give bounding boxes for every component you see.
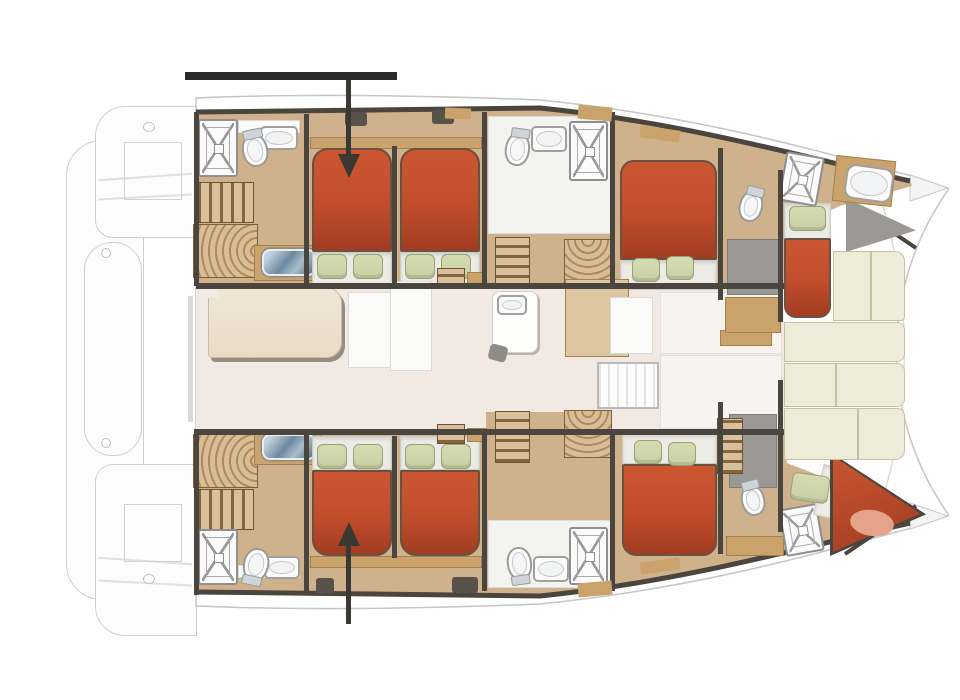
washbasin (533, 556, 569, 582)
pillow (789, 471, 831, 504)
arrow-down-icon (346, 80, 351, 156)
pillow (405, 444, 435, 469)
bulkhead (482, 431, 487, 591)
bulkhead (778, 170, 783, 322)
arrow-up-head-icon (338, 522, 360, 546)
bulkhead (304, 431, 309, 591)
shower-stall (569, 527, 608, 585)
bow-lounge-cushion (836, 363, 905, 407)
pillow (632, 258, 660, 282)
double-bed (400, 470, 480, 556)
bulkhead (610, 431, 615, 591)
hanging-locker (193, 434, 258, 488)
bulkhead (392, 436, 397, 558)
pillow (668, 442, 696, 466)
bow-lounge-cushion (784, 363, 836, 407)
bulkhead (718, 148, 723, 300)
pillow (317, 444, 347, 469)
pillow (405, 254, 435, 279)
pillow (666, 256, 694, 280)
sheer-trim (577, 105, 612, 122)
bow-lounge-cushion (833, 251, 871, 321)
arrow-up-icon (346, 546, 351, 624)
bow-lounge-cushion (858, 408, 905, 460)
galley-cabinet (390, 281, 432, 371)
pillow (634, 440, 662, 464)
bow-lounge-cushion (784, 408, 858, 460)
bulkhead (196, 429, 784, 435)
staircase (197, 489, 254, 530)
bulkhead (194, 112, 199, 286)
double-bed (400, 148, 480, 252)
catamaran-floor-plan (0, 0, 960, 700)
pillow (789, 206, 826, 231)
forward-double-bed (784, 238, 831, 318)
double-bed (620, 160, 717, 260)
bulkhead (196, 283, 784, 289)
pillow (317, 254, 347, 279)
washbasin (843, 163, 895, 204)
bulkhead (392, 146, 397, 286)
cabinet (725, 297, 781, 333)
deck-cleat (316, 578, 334, 594)
double-bed (622, 464, 717, 556)
bulkhead (610, 112, 615, 288)
staircase (495, 411, 530, 463)
arrow-down-head-icon (338, 154, 360, 178)
sheer-trim (577, 581, 612, 598)
bulkhead (304, 114, 309, 286)
companionway-slats (597, 362, 659, 409)
shower-stall (198, 529, 238, 585)
pillow (441, 444, 471, 469)
pillow (353, 444, 383, 469)
shower-stall (569, 121, 608, 181)
bulkhead (194, 429, 199, 595)
fridge-cabinet (610, 297, 653, 354)
salon-bench (348, 292, 392, 368)
shower-stall (198, 119, 238, 177)
pillow (353, 254, 383, 279)
washbasin (531, 126, 567, 152)
galley-sink (497, 295, 527, 315)
salon-table (208, 287, 342, 358)
bow-counter (726, 536, 784, 556)
highlight-bar (185, 72, 397, 80)
sheer-trim (445, 108, 471, 120)
bulkhead (482, 112, 487, 288)
bow-lounge-cushion (784, 322, 905, 362)
bow-lounge-cushion (871, 251, 905, 321)
staircase (197, 182, 254, 223)
deck-cleat (452, 577, 478, 593)
hanging-locker (193, 224, 258, 278)
staircase (495, 237, 530, 289)
bulkhead (718, 402, 723, 554)
cockpit-sliding-door (188, 296, 193, 422)
bulkhead (778, 380, 783, 532)
